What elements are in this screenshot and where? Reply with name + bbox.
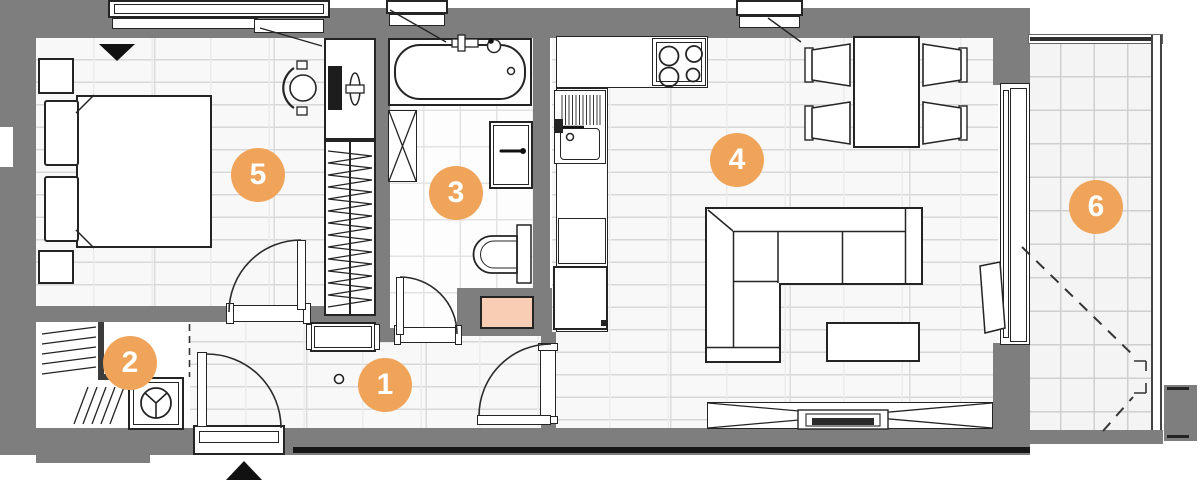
hallway-sideboard-cap-left (306, 324, 312, 350)
floor-balcony (1028, 44, 1152, 430)
badge-room-3[interactable]: 3 (429, 166, 483, 220)
entrance-door-panel (197, 352, 207, 427)
kitchen-window (736, 0, 803, 16)
wall-right-top-stub (993, 38, 1030, 85)
living-door-sill (540, 346, 556, 421)
living-door-panel (477, 415, 551, 425)
badge-room-2-number: 2 (122, 346, 139, 380)
wall-lower-edge-line (293, 447, 1030, 453)
badge-room-5[interactable]: 5 (231, 148, 285, 202)
bed-pillow-bottom (44, 176, 79, 242)
balcony-door-track (1003, 90, 1009, 338)
dining-table (853, 36, 920, 148)
balcony-railing-right (1151, 35, 1162, 430)
badge-room-5-number: 5 (250, 158, 267, 192)
bedroom-door-panel (297, 240, 306, 310)
bathroom-door-panel (396, 277, 404, 335)
wall-bathroom-kitchen (533, 38, 550, 290)
floor-plan: 1 2 3 4 5 6 (0, 0, 1200, 486)
neighbor-block-tick-top (1167, 387, 1189, 390)
bathroom-door-sill (398, 327, 457, 343)
bedroom-window-casement (254, 19, 324, 33)
wall-left-notch (0, 127, 13, 167)
fridge-handle (601, 320, 607, 326)
badge-room-3-number: 3 (448, 176, 465, 210)
desk-monitor-icon (328, 66, 342, 110)
kitchen-sink-basin (560, 128, 600, 160)
installation-shaft (480, 296, 534, 329)
entrance-arrow-icon (226, 461, 262, 480)
wall-bottom-left-step (36, 455, 150, 463)
balcony-railing-top-bar (1030, 37, 1161, 41)
hallway-sideboard-cap-right (374, 324, 380, 350)
bedroom-window-sill (112, 18, 258, 29)
badge-room-1[interactable]: 1 (358, 358, 412, 412)
bathroom-door-post-right (455, 325, 462, 345)
nightstand-top (38, 58, 74, 94)
bed-pillow-top (44, 100, 79, 166)
wall-left (0, 38, 36, 455)
entrance-door-sill-inner (199, 431, 279, 443)
nightstand-bottom (38, 250, 74, 284)
kitchen-window-sill (739, 16, 800, 28)
bathroom-window-sill (389, 14, 445, 26)
bathroom-window (386, 0, 448, 14)
floor-living-room (552, 38, 998, 430)
coffee-table (826, 322, 920, 362)
bathroom-sink-inner (493, 125, 529, 185)
badge-room-4-number: 4 (729, 143, 746, 177)
badge-room-6-number: 6 (1088, 190, 1105, 224)
bed-mattress (76, 95, 212, 248)
tv-console (707, 402, 993, 429)
bathtub-inner (394, 44, 526, 100)
bedroom-window-inner-frame (114, 4, 324, 14)
bedroom-door-post-left (226, 303, 234, 324)
wall-balcony-bottom (1030, 430, 1163, 444)
badge-room-1-number: 1 (377, 368, 394, 402)
hallway-sideboard-inner (314, 326, 372, 348)
washing-machine-inner (133, 382, 179, 425)
wall-right-bottom-stub (993, 343, 1030, 455)
badge-room-4[interactable]: 4 (710, 133, 764, 187)
living-door-post-top (538, 343, 558, 351)
dishwasher (558, 218, 606, 264)
wall-neighbor-block (1164, 385, 1197, 441)
bathroom-cabinet (388, 110, 417, 182)
fridge (553, 266, 608, 330)
stove-inner-frame (656, 42, 702, 82)
bedroom-door-sill (229, 305, 307, 322)
badge-room-6[interactable]: 6 (1069, 180, 1123, 234)
wardrobe-divider (349, 142, 351, 314)
neighbor-block-tick-bottom (1167, 435, 1189, 438)
balcony-door-leaf (1010, 88, 1027, 342)
badge-room-2[interactable]: 2 (103, 336, 157, 390)
wall-top-left-corner (0, 0, 108, 38)
